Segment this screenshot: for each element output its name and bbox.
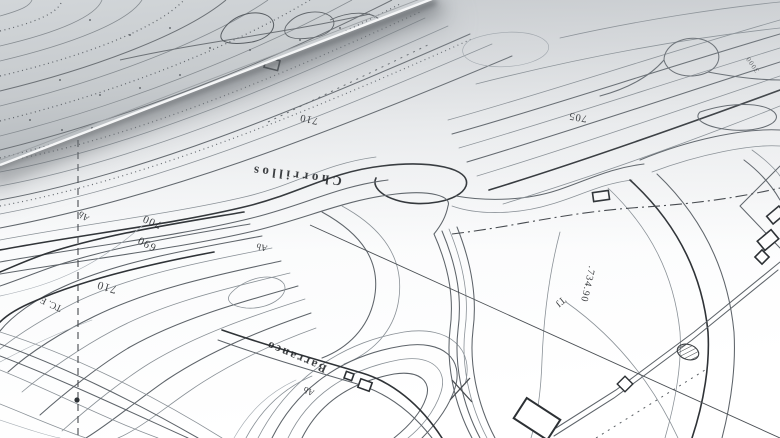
building-symbol xyxy=(344,371,354,380)
photographed-topographic-map: Chorrillos Barranco 700 690 710 710 705 … xyxy=(0,0,780,438)
map-drawing xyxy=(0,0,780,438)
survey-point-dot xyxy=(74,397,79,402)
